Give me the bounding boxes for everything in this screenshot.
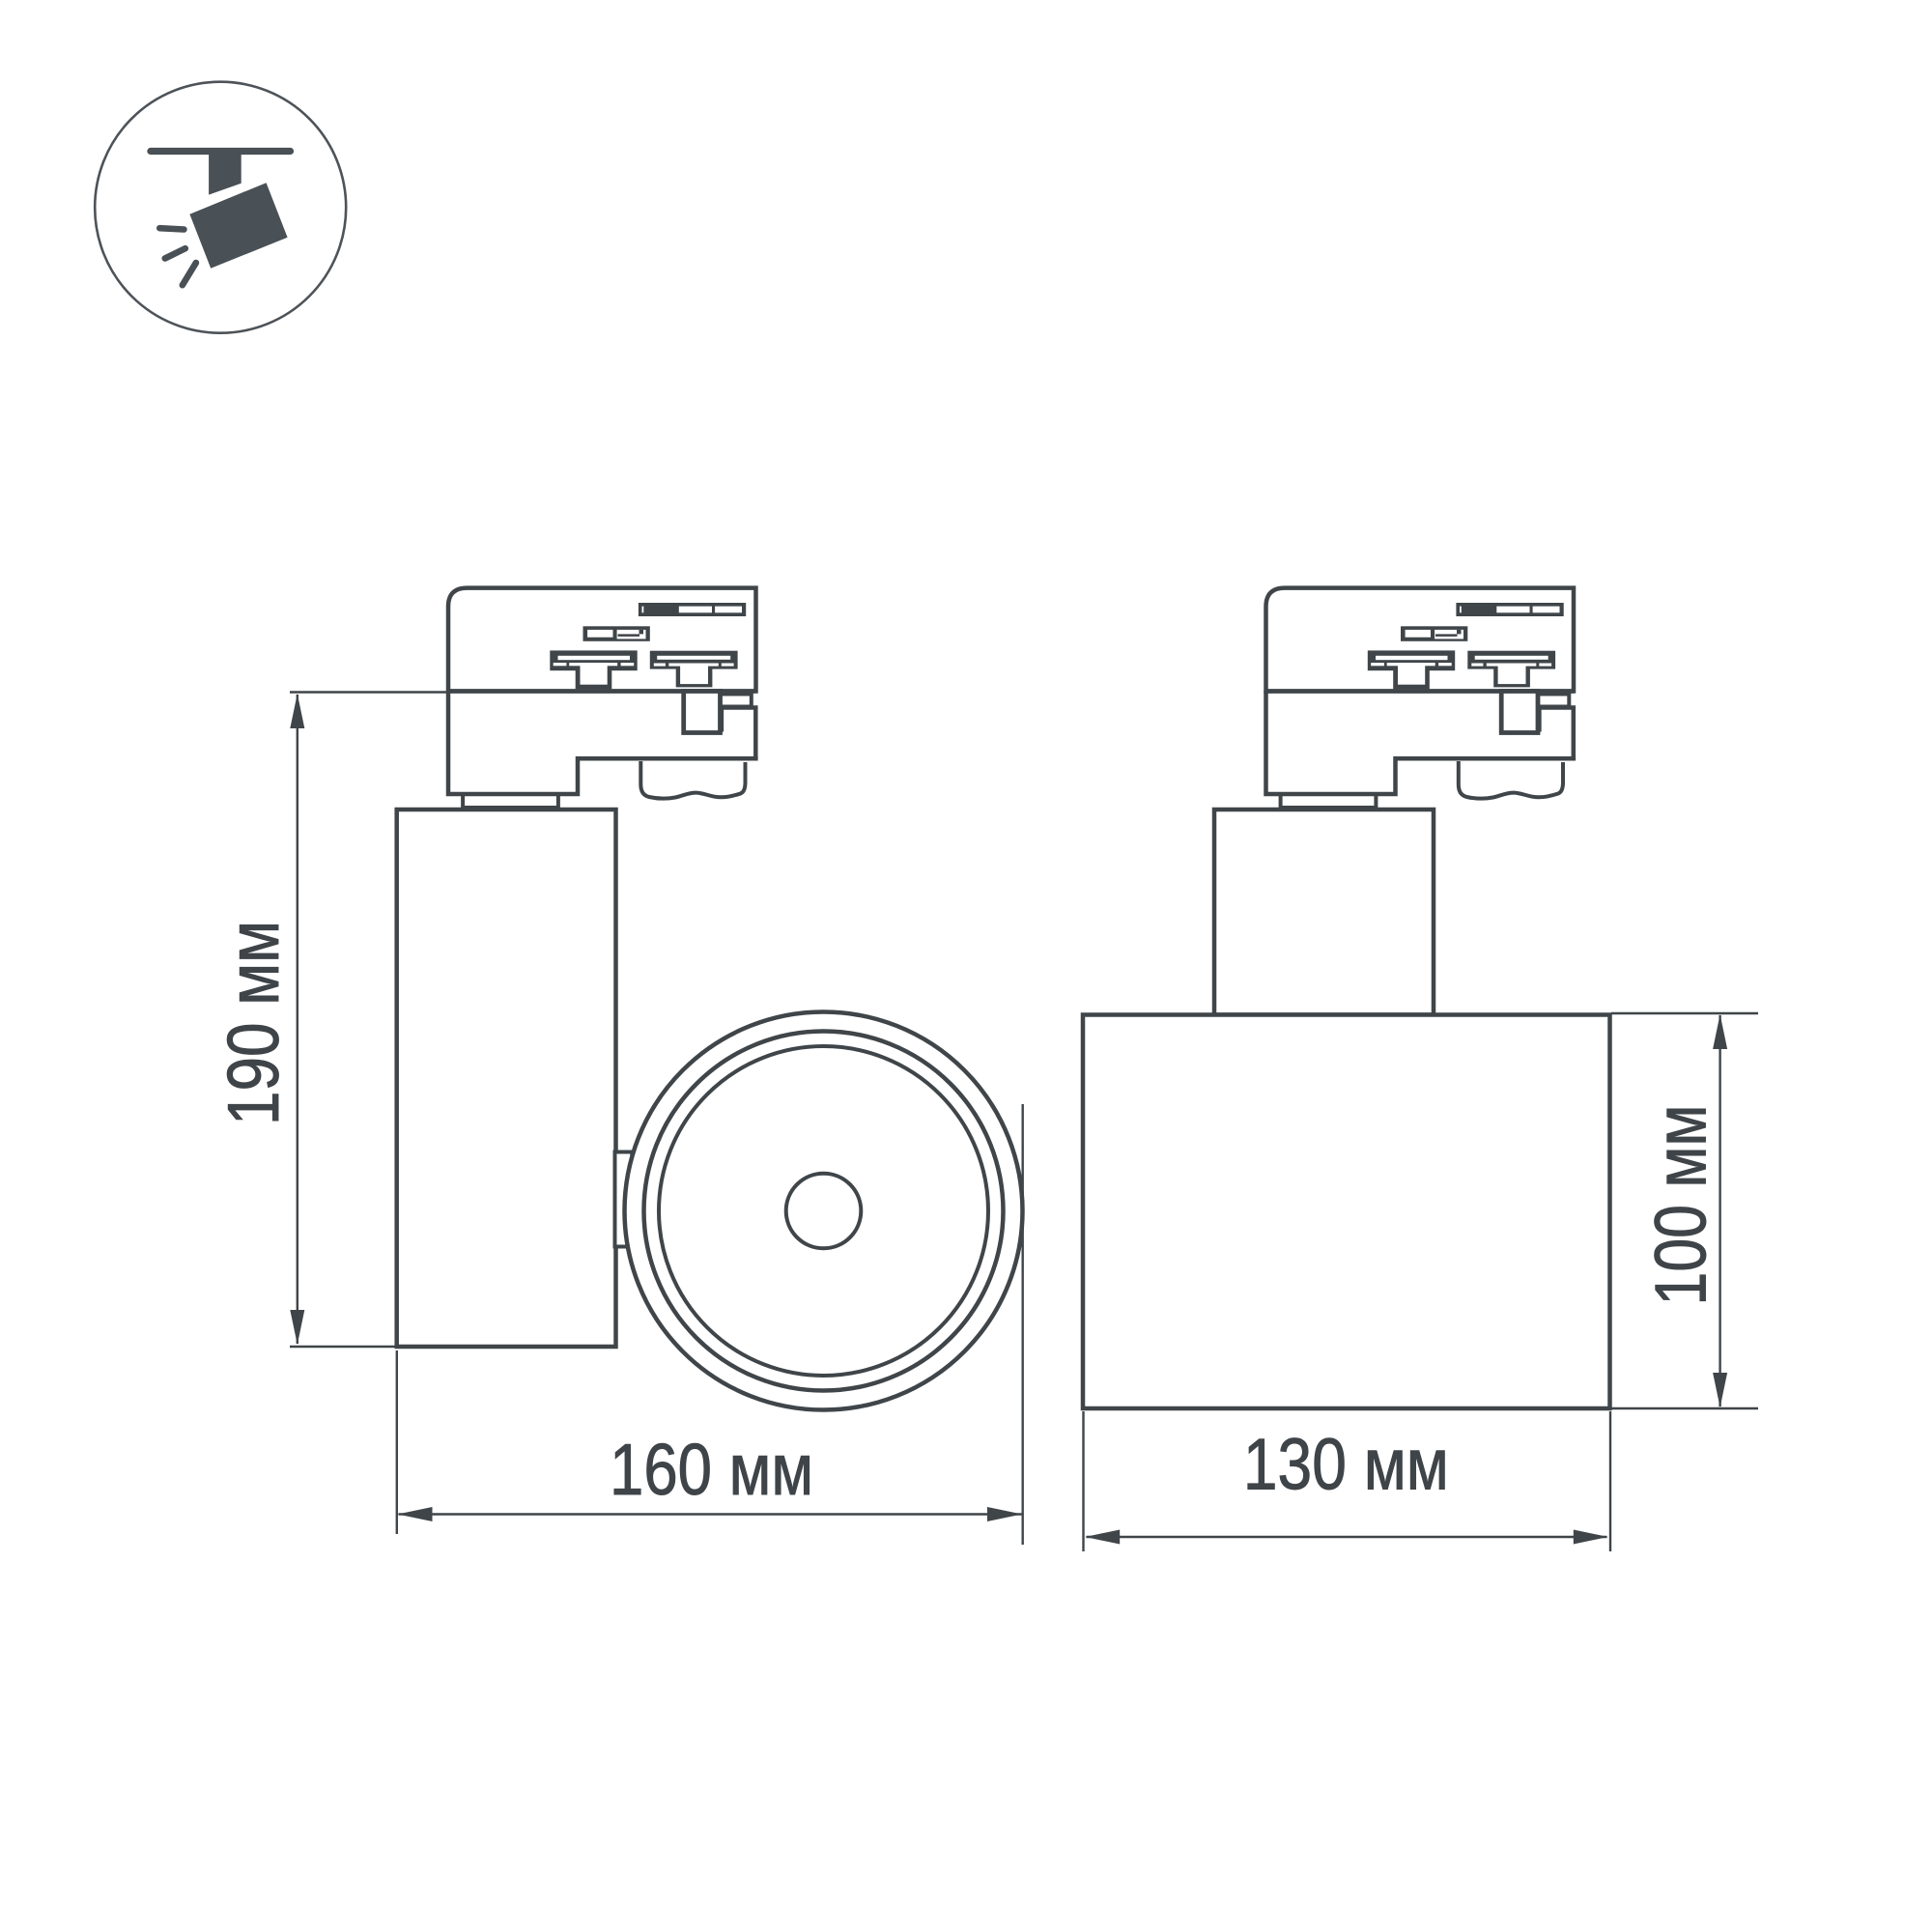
svg-text:160 мм: 160 мм (610, 1429, 813, 1510)
svg-text:190 мм: 190 мм (213, 921, 294, 1125)
svg-text:130 мм: 130 мм (1243, 1424, 1449, 1505)
svg-text:100 мм: 100 мм (1640, 1105, 1721, 1306)
